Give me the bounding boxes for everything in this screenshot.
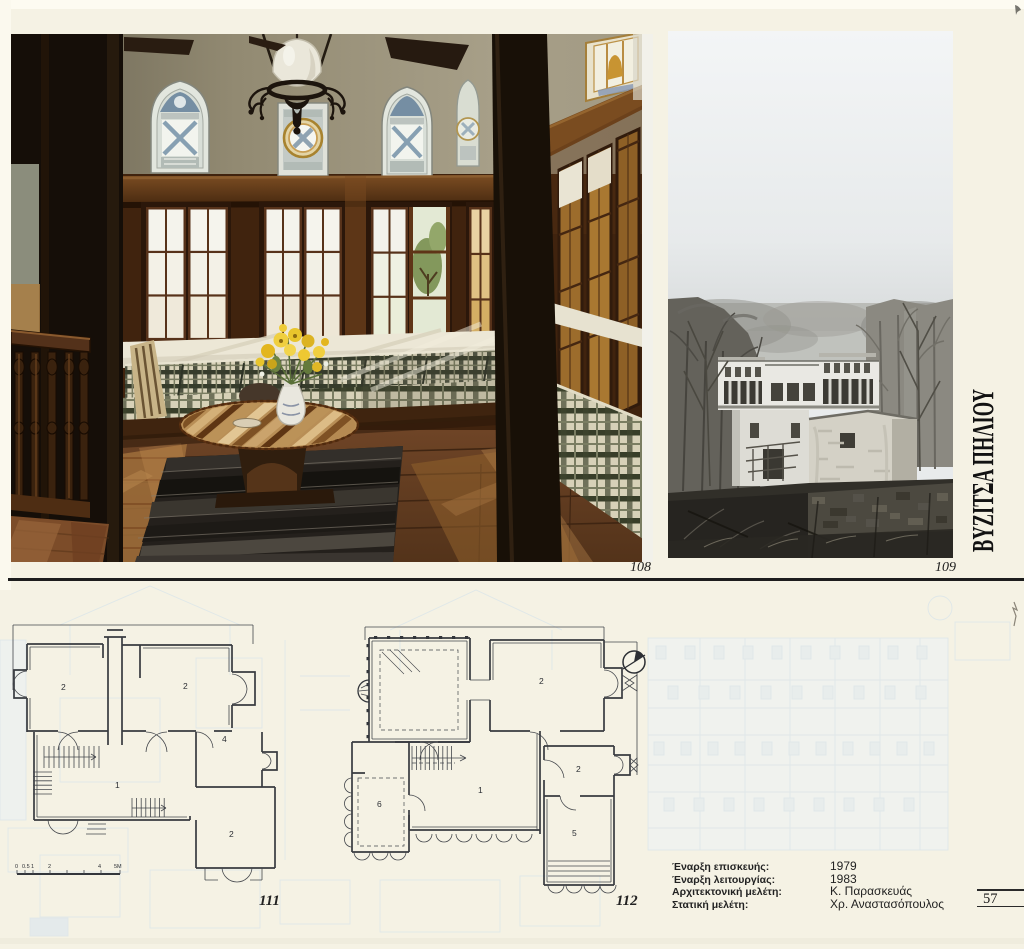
svg-text:6: 6 (377, 799, 382, 809)
svg-text:5M: 5M (114, 864, 122, 870)
svg-text:2: 2 (539, 676, 544, 686)
svg-text:1: 1 (31, 864, 34, 870)
svg-text:5: 5 (572, 828, 577, 838)
svg-text:2: 2 (61, 682, 66, 692)
svg-text:2: 2 (576, 764, 581, 774)
svg-text:2: 2 (229, 829, 234, 839)
svg-text:1: 1 (478, 785, 483, 795)
svg-text:4: 4 (98, 864, 101, 870)
svg-text:2: 2 (183, 681, 188, 691)
svg-text:2: 2 (48, 864, 51, 870)
svg-text:0.5: 0.5 (22, 864, 30, 870)
svg-text:1: 1 (115, 780, 120, 790)
svg-text:0: 0 (15, 864, 18, 870)
svg-text:4: 4 (222, 734, 227, 744)
svg-text:ΒΥΖΙΤΣΑ ΠΗΛΙΟΥ: ΒΥΖΙΤΣΑ ΠΗΛΙΟΥ (965, 389, 1000, 552)
